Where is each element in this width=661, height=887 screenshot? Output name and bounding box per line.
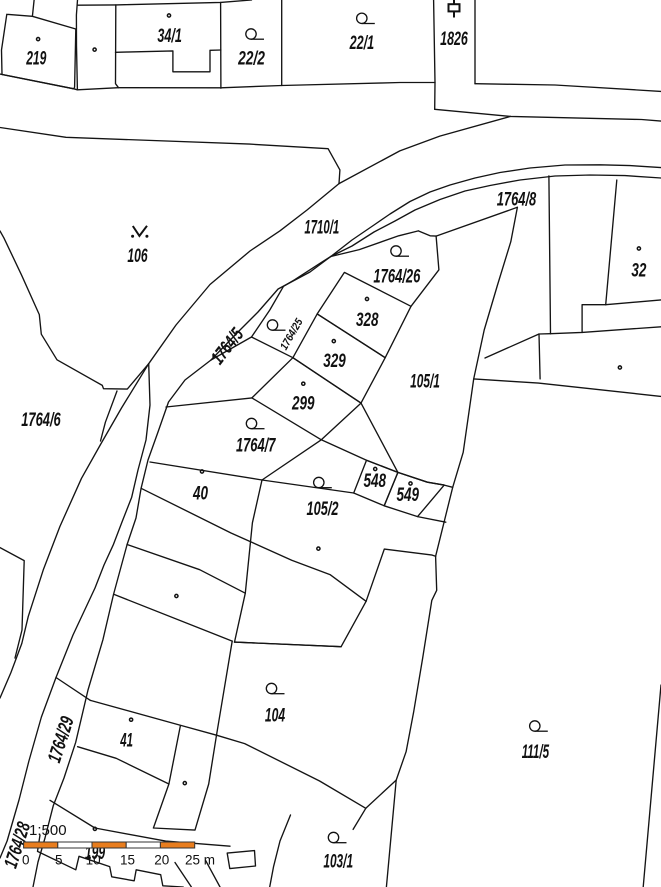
svg-text:103/1: 103/1 (323, 852, 353, 873)
svg-text:25 m: 25 m (185, 853, 215, 868)
svg-text:111/5: 111/5 (522, 742, 550, 763)
svg-text:1764/7: 1764/7 (236, 435, 276, 456)
svg-text:1826: 1826 (440, 29, 468, 50)
svg-text:15: 15 (120, 853, 135, 868)
svg-text:219: 219 (26, 49, 47, 70)
svg-text:1:500: 1:500 (29, 822, 67, 839)
svg-text:1764/8: 1764/8 (497, 190, 537, 211)
svg-text:34/1: 34/1 (157, 26, 182, 47)
svg-text:105/1: 105/1 (410, 372, 440, 393)
svg-text:548: 548 (364, 471, 387, 492)
svg-text:299: 299 (291, 394, 315, 415)
svg-text:22/2: 22/2 (237, 49, 265, 70)
svg-text:1710/1: 1710/1 (304, 218, 339, 239)
svg-text:41: 41 (120, 731, 133, 752)
svg-text:10: 10 (86, 853, 101, 868)
svg-text:1764/6: 1764/6 (21, 410, 61, 431)
svg-text:40: 40 (192, 484, 208, 505)
svg-text:0: 0 (22, 853, 30, 868)
svg-text:105/2: 105/2 (307, 499, 339, 520)
svg-text:329: 329 (323, 351, 346, 372)
svg-text:104: 104 (265, 706, 285, 727)
svg-text:20: 20 (154, 853, 169, 868)
svg-text:328: 328 (356, 310, 379, 331)
svg-text:22/1: 22/1 (349, 33, 374, 54)
svg-text:106: 106 (127, 246, 147, 267)
svg-text:549: 549 (397, 485, 420, 506)
svg-text:5: 5 (55, 853, 63, 868)
svg-text:32: 32 (631, 260, 646, 281)
svg-text:1764/26: 1764/26 (373, 266, 420, 287)
